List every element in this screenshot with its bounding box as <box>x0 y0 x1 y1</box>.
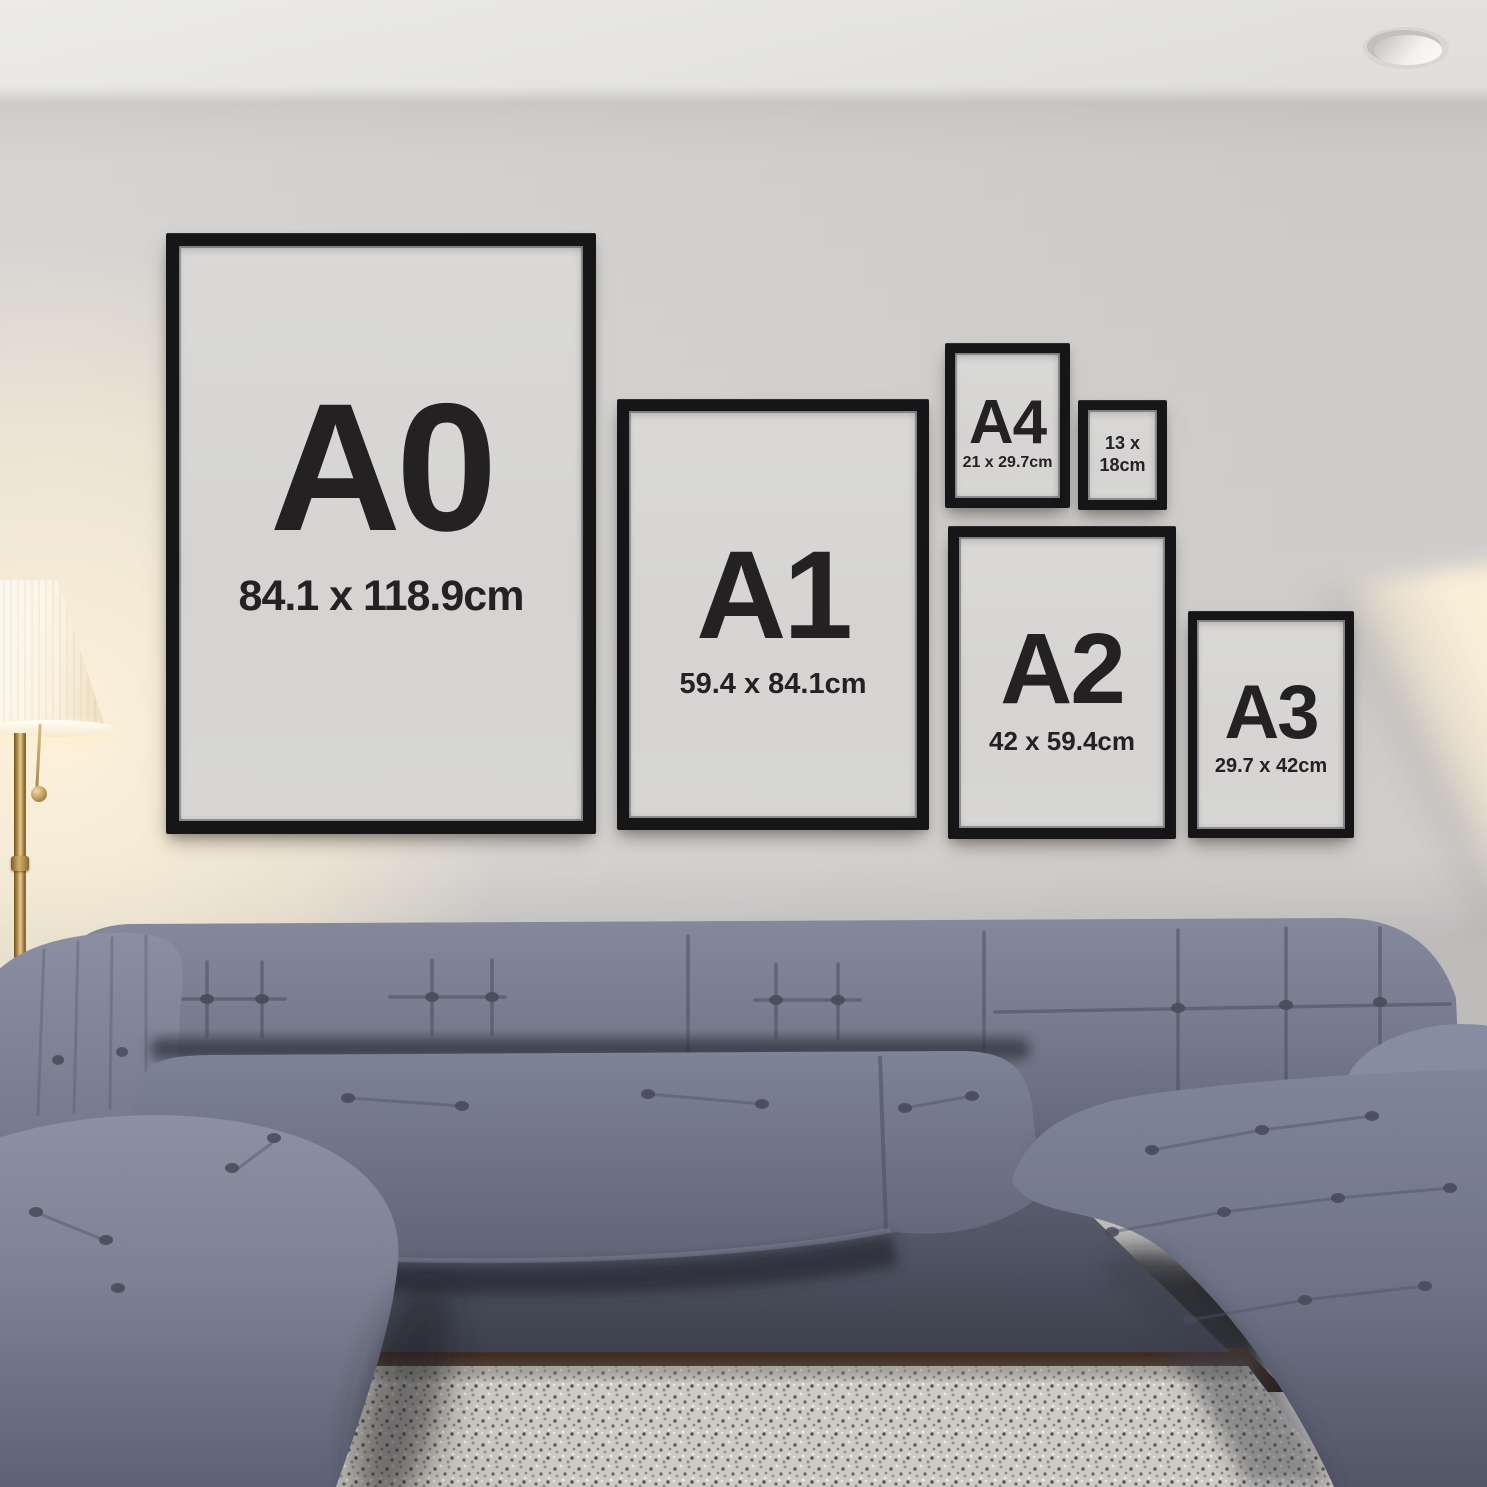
sofa-rug-floor-illustration <box>0 0 1487 1487</box>
living-room-poster-size-mockup: A0 84.1 x 118.9cm A1 59.4 x 84.1cm A4 21… <box>0 0 1487 1487</box>
